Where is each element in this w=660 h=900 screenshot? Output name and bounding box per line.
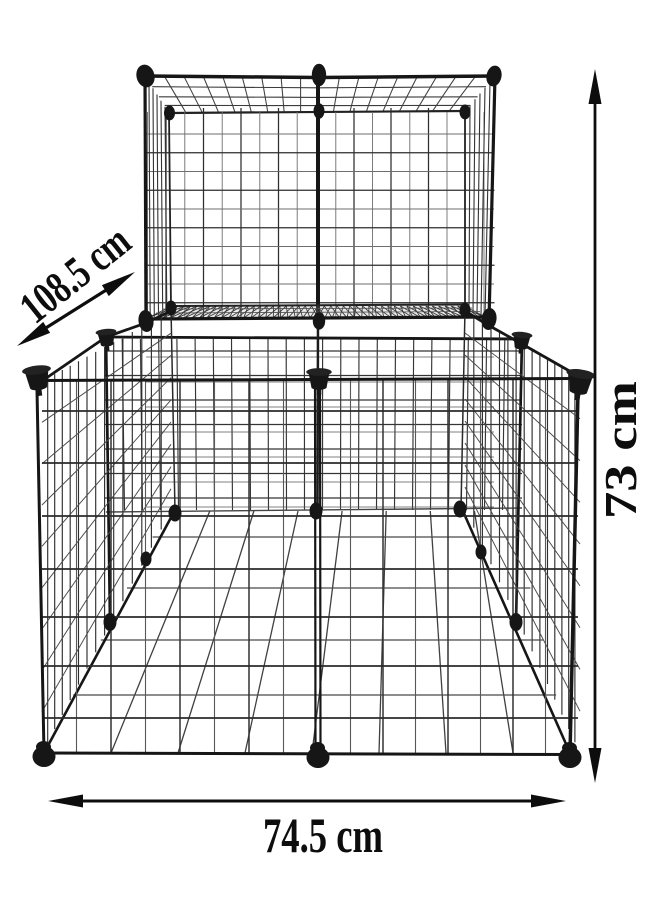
svg-text:73 cm: 73 cm [595, 381, 646, 519]
svg-text:74.5 cm: 74.5 cm [263, 807, 383, 863]
